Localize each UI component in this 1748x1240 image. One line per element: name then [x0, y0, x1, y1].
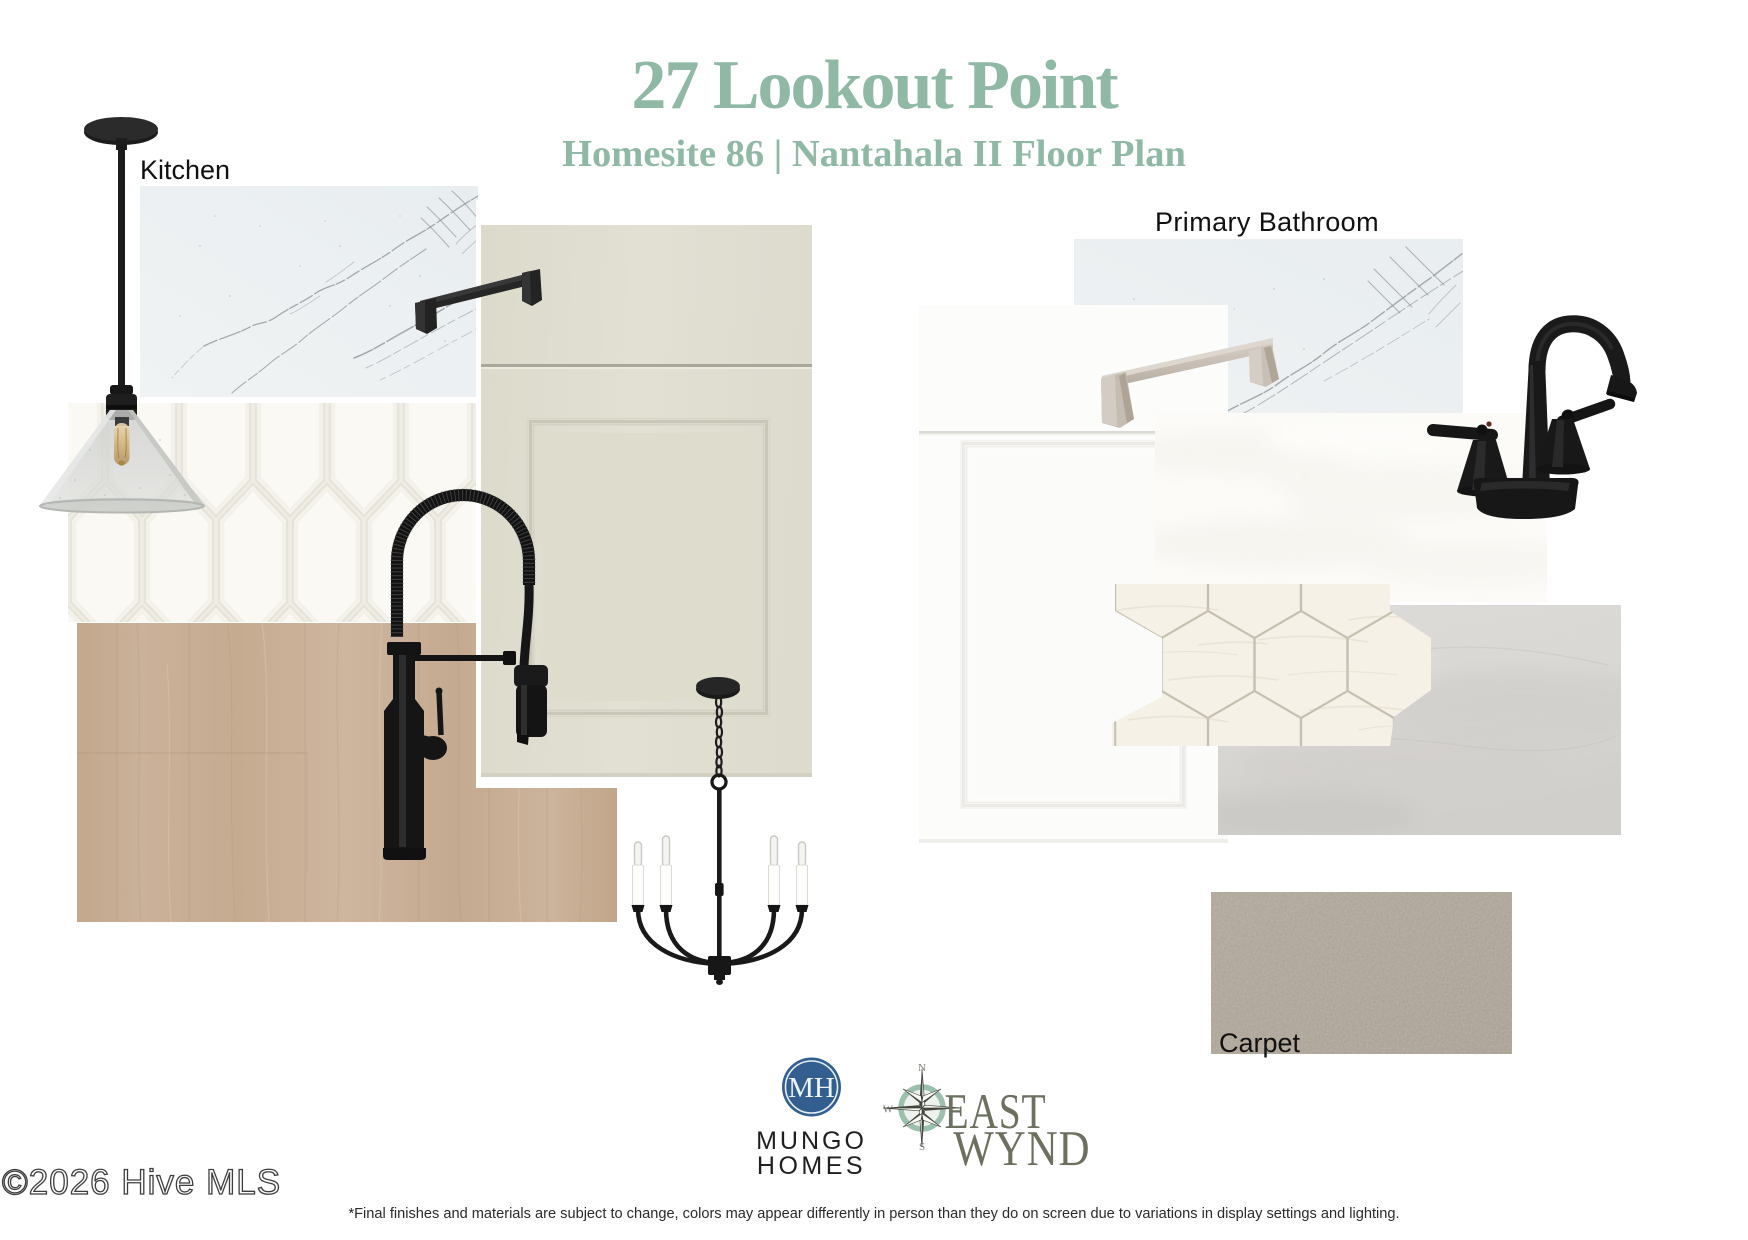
svg-text:MH: MH	[788, 1072, 835, 1104]
svg-text:MUNGO: MUNGO	[756, 1127, 867, 1155]
svg-text:WYND: WYND	[953, 1120, 1090, 1175]
svg-text:W: W	[883, 1104, 894, 1116]
svg-text:HOMES: HOMES	[757, 1152, 866, 1180]
